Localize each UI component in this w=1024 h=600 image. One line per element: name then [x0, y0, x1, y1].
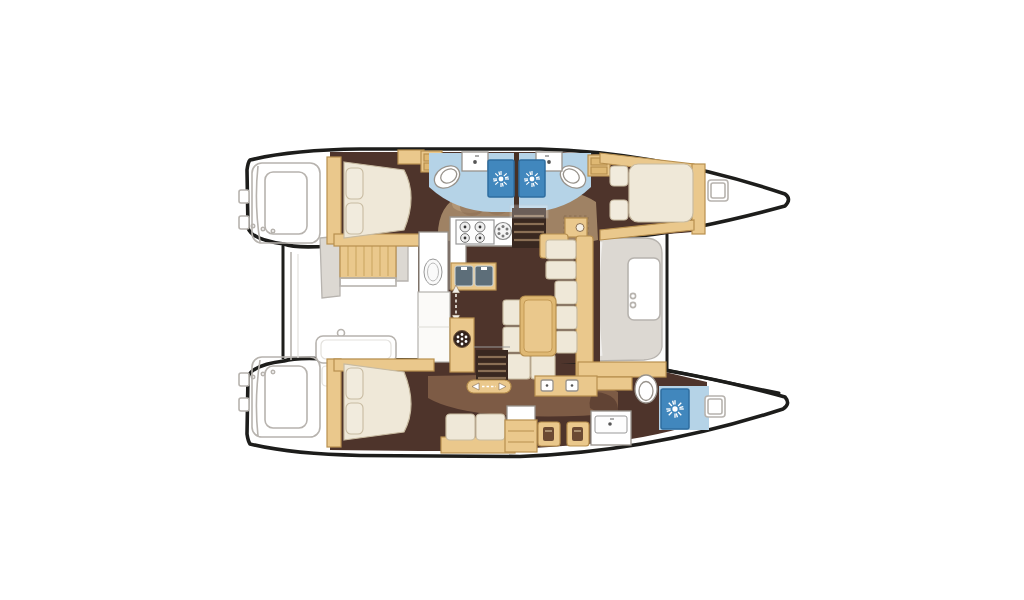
shower-stall	[519, 160, 545, 197]
sofa-cushion	[531, 354, 555, 379]
pillow	[346, 403, 363, 434]
forward-cockpit	[591, 237, 665, 361]
shower-head-sunburst-icon	[524, 171, 540, 187]
deck-hatch-icon	[708, 180, 728, 201]
sofa-cushion	[476, 414, 505, 440]
double-bed	[629, 164, 693, 222]
forward-bridgedeck-edge	[667, 233, 779, 393]
toilet-icon	[635, 375, 657, 403]
cockpit-bench-seat	[340, 240, 396, 286]
aux-burner-icon	[495, 223, 512, 240]
vanity-stool	[538, 422, 560, 446]
drawer-unit-icon	[505, 420, 537, 452]
vanity-counter	[535, 376, 597, 396]
deck-hatch-icon	[705, 396, 725, 417]
pillow	[610, 166, 628, 186]
sofa-cushion	[555, 331, 577, 353]
sofa-cushion	[555, 306, 577, 329]
sink-basin-icon	[462, 152, 488, 171]
side-table	[507, 406, 535, 421]
pillow	[346, 203, 363, 234]
sliding-door-pill	[467, 380, 511, 393]
aft-galley-counter	[419, 232, 448, 294]
pillow	[610, 200, 628, 220]
sofa-cushion	[446, 414, 475, 440]
stairway-port	[474, 347, 510, 384]
vanity-stool	[567, 422, 589, 446]
shower-stall	[659, 386, 709, 430]
sofa-cushion	[546, 261, 576, 279]
floor-plan-svg: Catamaran interior layout, top-down view	[0, 0, 1024, 600]
sink-basin-icon	[595, 416, 627, 433]
sofa-cushion	[546, 240, 576, 259]
dining-table	[520, 296, 556, 356]
stove-burner-icon	[456, 220, 494, 244]
sofa-cushion	[506, 354, 530, 379]
speaker-grille-icon	[454, 331, 471, 348]
shower-head-sunburst-icon	[493, 171, 509, 187]
pillow	[346, 368, 363, 399]
forward-cockpit-bench-cutout	[628, 258, 660, 320]
shower-head-sunburst-icon	[666, 400, 684, 418]
catamaran-floor-plan: Catamaran interior layout, top-down view	[0, 0, 1024, 600]
shower-stall	[488, 160, 514, 197]
pillow	[346, 168, 363, 199]
sofa-cushion	[555, 281, 577, 304]
galley-double-sink	[451, 263, 496, 290]
